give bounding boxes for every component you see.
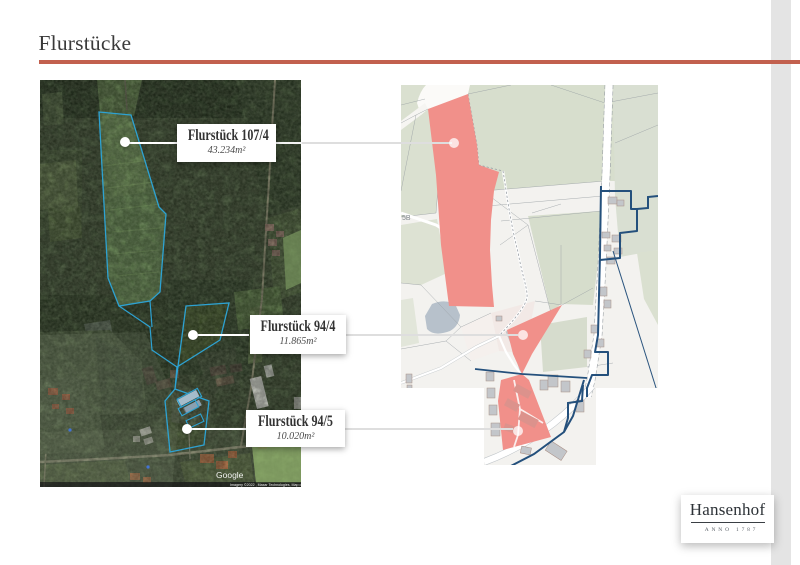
svg-text:Imagery ©2022 , Maxar Technolo: Imagery ©2022 , Maxar Technologies, Map … bbox=[230, 483, 301, 487]
svg-text:5B: 5B bbox=[402, 215, 411, 222]
svg-text:Google: Google bbox=[216, 470, 244, 480]
